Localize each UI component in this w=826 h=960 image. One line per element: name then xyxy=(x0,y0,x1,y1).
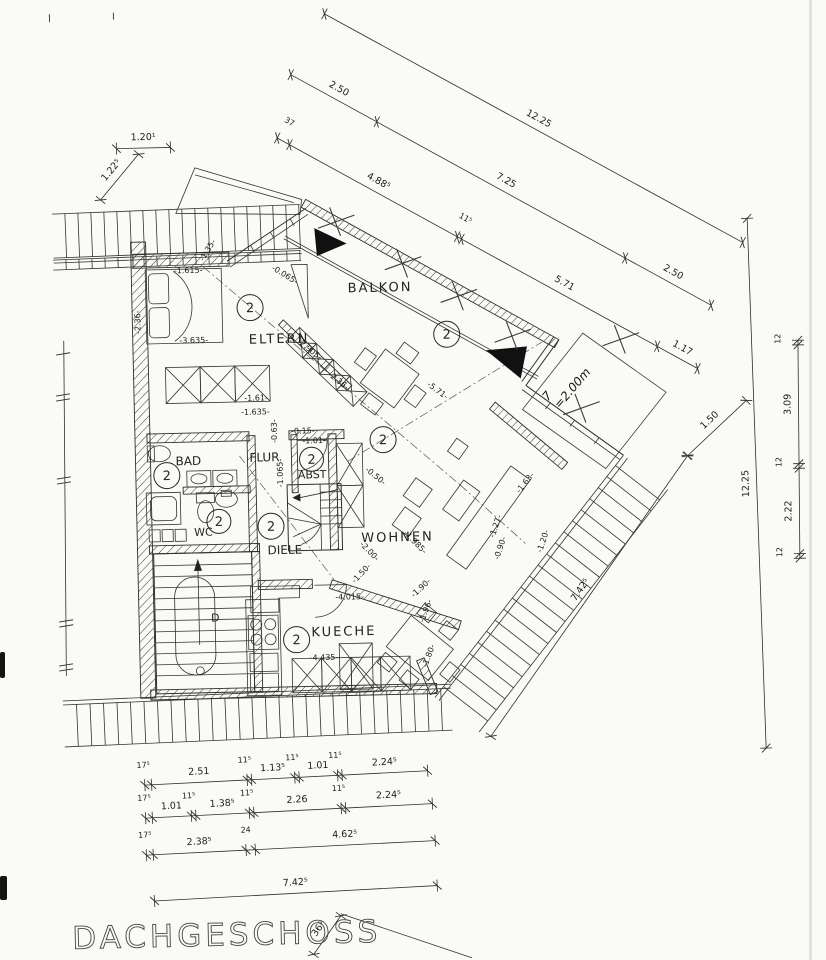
batten-line xyxy=(260,206,262,250)
unit-badge-kueche: 2 xyxy=(283,626,310,653)
dim-label: 11⁵ xyxy=(331,783,345,793)
dim-label: 11⁵ xyxy=(457,211,473,225)
interior-dim-label: -0.065- xyxy=(270,263,299,286)
floor-plan-drawing: 7 =2.00m 12.252.507.252.50374.88⁵11⁵5.71… xyxy=(0,0,826,960)
room-label-diele: DIELE xyxy=(267,543,302,558)
batten-line xyxy=(512,597,556,633)
dim-label: 7.42⁵ xyxy=(569,576,592,603)
batten-line xyxy=(581,509,625,545)
dim-label: 3.09 xyxy=(782,394,793,415)
dim-label: 4.62⁵ xyxy=(332,829,358,841)
dim-tick-slash xyxy=(276,132,279,144)
batten-line xyxy=(104,212,106,256)
batten-line xyxy=(91,213,93,257)
interior-dim-label: -2.36- xyxy=(133,310,143,334)
dim-label: 2.22 xyxy=(783,500,794,521)
triangle-marker xyxy=(486,346,528,379)
batten-line xyxy=(306,694,308,736)
dim-label: 11⁵ xyxy=(182,791,196,801)
dim-tick-slash xyxy=(455,231,458,243)
batten-line xyxy=(292,695,294,737)
dim-chain-roof-edge-ext: 1.50 xyxy=(680,396,753,461)
wall-bottom xyxy=(151,684,437,700)
dim-label: 1.50 xyxy=(698,409,721,432)
interior-dim-label: -3.635- xyxy=(179,336,208,346)
plan-line xyxy=(116,147,170,148)
drawing-content: 7 =2.00m 12.252.507.252.50374.88⁵11⁵5.71… xyxy=(44,0,817,960)
batten-line xyxy=(157,701,159,743)
interior-dim-label: -1.27- xyxy=(488,514,504,539)
dim-chain-bottom-row3: 17⁵2.38⁵244.62⁵ xyxy=(138,821,440,861)
cabinet xyxy=(175,529,186,541)
batten-line xyxy=(427,689,429,731)
dim-tick-slash xyxy=(95,199,107,200)
plan-line xyxy=(336,443,363,486)
batten-line xyxy=(373,692,375,734)
batten-line xyxy=(530,575,574,611)
wall-left xyxy=(131,242,156,698)
batten-line xyxy=(279,696,281,738)
triangle-marker xyxy=(314,227,347,256)
dim-label: 1.17 xyxy=(670,338,694,358)
batten-line xyxy=(319,694,321,736)
roof-wedge-line xyxy=(195,173,294,205)
batten-line xyxy=(564,531,608,567)
interior-dim-label: -1.20- xyxy=(535,528,551,553)
batten-line xyxy=(117,703,119,745)
svg-text:2: 2 xyxy=(163,469,172,484)
dim-chain-bottom-row2: 17⁵1.0111⁵1.38⁵11⁵2.2611⁵2.24⁵ xyxy=(137,781,437,824)
batten-line xyxy=(414,690,416,732)
batten-line xyxy=(504,608,548,644)
chair xyxy=(361,393,384,415)
chair xyxy=(404,385,426,408)
batten-line xyxy=(182,209,184,253)
dim-label: 17⁵ xyxy=(136,760,150,770)
dim-tick-slash xyxy=(656,341,659,353)
wall-kueche-top xyxy=(258,579,312,589)
dim-label: 5.71 xyxy=(552,274,576,294)
balcony-outer-rail xyxy=(301,194,559,354)
room-label-wohnen: WOHNEN xyxy=(361,530,434,547)
batten-line xyxy=(360,692,362,734)
batten-line xyxy=(333,693,335,735)
batten-line xyxy=(144,701,146,743)
dim-label: 24 xyxy=(240,825,251,835)
batten-line xyxy=(265,696,267,738)
plan-line xyxy=(145,771,428,785)
dim-label: 2.26 xyxy=(286,794,308,806)
interior-dimensions: -1.615--0.065--1.35--3.635--2.905--2.36-… xyxy=(131,230,554,675)
room-label-bad: BAD xyxy=(175,454,201,469)
batten-line xyxy=(156,210,158,254)
plan-line xyxy=(65,730,453,747)
stair-label-d: D xyxy=(211,611,220,624)
interior-dim-label: -4.015- xyxy=(335,592,364,602)
paper-edge xyxy=(809,0,812,960)
dim-label: 1.20¹ xyxy=(131,132,156,144)
dim-chain-top-outer: 12.25 xyxy=(321,0,746,258)
batten-line xyxy=(117,212,119,256)
plan-line xyxy=(433,458,632,700)
dim-label: 12.25 xyxy=(740,470,752,498)
dim-tick-slash xyxy=(741,237,744,249)
batten-line xyxy=(461,663,505,699)
dim-label: 12 xyxy=(774,457,783,467)
svg-text:2: 2 xyxy=(442,328,451,343)
batten-line xyxy=(211,699,213,741)
interior-dim-label: -1.635- xyxy=(241,407,270,417)
unit-badge-eltern: 2 xyxy=(237,294,264,321)
batten-line xyxy=(103,703,105,745)
interior-dim-label: -0.63- xyxy=(270,419,280,443)
batten-line xyxy=(444,686,488,722)
batten-line xyxy=(238,697,240,739)
dim-chain-top-left-diag: 1.22⁵ xyxy=(94,150,146,204)
scan-smudge xyxy=(0,876,7,900)
dim-label: 2.38⁵ xyxy=(186,836,212,848)
plan-line xyxy=(277,129,697,378)
dim-tick-slash xyxy=(375,116,378,128)
dim-label: 1.01 xyxy=(161,800,183,812)
batten-line xyxy=(400,690,402,732)
page-title: DACHGESCHOSS xyxy=(72,914,382,957)
dim-chain-bottom-total: 7.42⁵ xyxy=(150,874,442,908)
dim-label: 11⁵ xyxy=(240,788,254,798)
dim-tick-slash xyxy=(623,252,626,264)
left-dimension-line xyxy=(52,341,78,676)
wall-bad-top xyxy=(147,432,249,443)
batten-line xyxy=(495,619,539,655)
dim-label: 2.24⁵ xyxy=(376,789,402,801)
batten-line xyxy=(252,697,254,739)
room-label-eltern: ELTERN xyxy=(249,331,310,347)
batten-line xyxy=(487,630,531,666)
dim-tick-slash xyxy=(696,363,699,375)
batten-line xyxy=(346,693,348,735)
dim-chain-right-outer: 12.25 xyxy=(734,214,772,753)
plan-line xyxy=(474,490,673,732)
room-label-kueche: KUECHE xyxy=(311,624,376,640)
dim-label: 12 xyxy=(775,547,784,557)
armchair xyxy=(403,478,432,508)
handwritten-equals-2m: =2.00m xyxy=(551,365,593,411)
batten-line xyxy=(607,476,651,512)
dim-label: 7.25 xyxy=(494,171,518,191)
batten-line xyxy=(195,209,197,253)
batten-line xyxy=(521,586,565,622)
batten-line xyxy=(469,652,513,688)
interior-dim-label: -5.71- xyxy=(425,380,449,401)
dim-chain-right-inner: 123.09122.2212 xyxy=(770,333,809,563)
dim-chain-top-left-width: 1.20¹ xyxy=(112,131,175,154)
unit-badge-bad: 2 xyxy=(154,462,181,489)
dim-label: 2.51 xyxy=(188,766,210,778)
batten-line xyxy=(171,700,173,742)
svg-text:2: 2 xyxy=(246,301,255,316)
plan-line xyxy=(686,400,747,455)
dim-label: 4.88⁵ xyxy=(365,171,392,193)
wall-flur-abst xyxy=(291,435,298,493)
scan-marks xyxy=(49,13,113,22)
roof-wedge-topleft xyxy=(175,165,302,217)
stair-walkline xyxy=(174,577,216,676)
dim-tick-slash xyxy=(709,299,712,311)
stair-arrow xyxy=(292,494,300,502)
interior-dim-label: -4.435- xyxy=(310,653,339,663)
interior-dim-label: -1.90- xyxy=(409,577,432,600)
dining-table xyxy=(360,349,419,408)
batten-line xyxy=(452,674,496,710)
batten-line xyxy=(590,498,634,534)
dim-label: 1.38⁵ xyxy=(209,798,235,810)
interior-dim-label: -1.01- xyxy=(302,436,326,446)
interior-dim-label: -1.50- xyxy=(350,562,373,585)
plan-line xyxy=(485,456,694,737)
room-label-abst: ABST xyxy=(298,468,327,482)
dim-tick-slash xyxy=(740,400,752,401)
batten-line xyxy=(184,700,186,742)
svg-text:2: 2 xyxy=(379,433,388,448)
dim-label: 12 xyxy=(773,334,782,344)
dim-tick-slash xyxy=(308,953,320,955)
interior-dim-label: -1.63- xyxy=(514,471,536,495)
dormer-cheek xyxy=(291,264,308,318)
interior-dim-label: -0.15- xyxy=(291,426,315,436)
chair xyxy=(354,348,376,371)
floor-plan-scan: 7 =2.00m 12.252.507.252.50374.88⁵11⁵5.71… xyxy=(0,0,826,960)
scan-smudge xyxy=(0,652,5,678)
dim-label: 1.01 xyxy=(307,760,329,772)
batten-line xyxy=(90,704,92,746)
batten-line xyxy=(572,520,616,556)
batten-line xyxy=(130,702,132,744)
dim-tick-slash xyxy=(288,139,291,151)
interior-dim-label: -1.61- xyxy=(244,393,268,403)
handwritten-note: 7 =2.00m xyxy=(539,356,593,413)
unit-badge-diele: 2 xyxy=(258,513,285,540)
dim-chain-bottom-row1: 17⁵2.5111⁵1.13⁵11⁵1.0111⁵2.24⁵ xyxy=(136,748,432,791)
main-staircase xyxy=(154,552,255,694)
direction-markers xyxy=(314,223,527,383)
batten-line xyxy=(247,207,249,251)
dim-label: 17⁵ xyxy=(137,793,151,803)
batten-line xyxy=(615,465,659,501)
batten-line xyxy=(478,641,522,677)
interior-dim-label: -0.50- xyxy=(363,465,387,487)
batten-line xyxy=(387,691,389,733)
dim-chain-roof-edge: 7.42⁵ xyxy=(479,452,700,740)
sink xyxy=(187,471,211,488)
cabinet xyxy=(162,529,173,541)
dim-label: 2.50 xyxy=(661,262,685,282)
batten-line xyxy=(198,699,200,741)
dim-label: 1.13⁵ xyxy=(260,762,286,774)
dim-label: 2.50 xyxy=(327,79,351,99)
chair xyxy=(396,342,419,364)
room-label-wc: WC xyxy=(194,526,213,539)
plan-line xyxy=(795,340,803,558)
x-cabinet xyxy=(336,443,364,528)
interior-dim-label: -1.80- xyxy=(420,643,437,668)
counter xyxy=(246,599,282,696)
dormer-wall xyxy=(226,208,307,261)
sink xyxy=(213,470,237,487)
dim-tick-slash xyxy=(460,233,463,245)
dim-label: 12.25 xyxy=(524,108,553,131)
svg-text:2: 2 xyxy=(292,633,301,648)
side-table xyxy=(447,438,468,459)
batten-line xyxy=(286,205,288,249)
dim-tick-slash xyxy=(682,455,694,456)
batten-line xyxy=(441,689,443,731)
dim-label: 11⁵ xyxy=(285,753,299,763)
unit-badge-wc: 2 xyxy=(207,509,232,534)
washbasin xyxy=(148,446,170,462)
svg-text:2: 2 xyxy=(215,515,224,530)
batten-band xyxy=(430,454,674,733)
svg-text:2: 2 xyxy=(267,520,276,535)
plan-line xyxy=(324,5,742,252)
svg-text:2: 2 xyxy=(307,453,316,468)
dormer-mullions xyxy=(250,219,295,253)
sofa xyxy=(447,466,531,569)
dim-label: 11⁵ xyxy=(237,755,251,765)
dim-label: 37 xyxy=(283,115,296,128)
batten-line xyxy=(77,704,79,746)
interior-dim-label: -1.615- xyxy=(174,266,203,276)
room-label-flur: FLUR xyxy=(249,450,279,465)
batten-line xyxy=(555,542,599,578)
dim-tick-slash xyxy=(133,154,145,155)
batten-line xyxy=(169,210,171,254)
dim-tick-slash xyxy=(323,8,326,20)
dormer-wall-inner xyxy=(229,214,309,267)
room-label-balkon: BALKON xyxy=(347,280,412,296)
wall-wohnen-window-sill xyxy=(489,401,567,472)
batten-line xyxy=(65,214,67,258)
dim-tick-slash xyxy=(485,735,497,737)
batten-line xyxy=(598,487,642,523)
dim-label: 17⁵ xyxy=(138,830,152,840)
bed xyxy=(145,268,223,344)
pencil-cross xyxy=(603,325,640,354)
dim-label: 7.42⁵ xyxy=(283,877,309,889)
dim-label: 11⁵ xyxy=(328,751,342,761)
dim-tick-slash xyxy=(289,69,292,81)
batten-line xyxy=(273,206,275,250)
batten-line xyxy=(225,698,227,740)
dim-label: 2.24⁵ xyxy=(372,756,398,768)
batten-line xyxy=(78,213,80,257)
dim-label: 1.22⁵ xyxy=(99,157,124,183)
unit-badge-wohnen: 2 xyxy=(370,426,397,453)
